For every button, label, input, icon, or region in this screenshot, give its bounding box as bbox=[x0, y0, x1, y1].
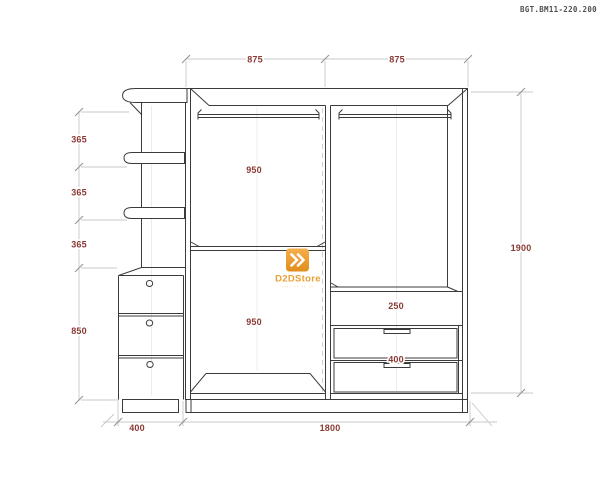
dim-shelf-gap-3: 365 bbox=[71, 239, 87, 249]
drawer-knob bbox=[146, 320, 152, 326]
side-unit-top-panel bbox=[123, 89, 188, 103]
dim-upper-section: 950 bbox=[246, 165, 262, 175]
drawer-handle-slot bbox=[384, 330, 410, 334]
dim-shelf-gap-2: 365 bbox=[71, 187, 87, 197]
dim-top-left-span: 875 bbox=[247, 54, 263, 64]
watermark-brand-text: D2DStore bbox=[275, 274, 321, 285]
watermark-tagline-text: ···· ·· ·· ·· bbox=[282, 285, 314, 290]
drawer-knob bbox=[146, 281, 152, 287]
dim-overall-height: 1900 bbox=[511, 243, 532, 253]
dim-lower-section: 950 bbox=[246, 317, 262, 327]
technical-drawing-canvas: D2DStore ···· ·· ·· ·· 875 875 365 365 3… bbox=[0, 0, 600, 481]
drawer-knob bbox=[147, 362, 153, 368]
interior-shelves bbox=[191, 106, 463, 292]
watermark: D2DStore ···· ·· ·· ·· bbox=[275, 249, 321, 290]
hanging-rails bbox=[198, 110, 451, 120]
dim-right-drawer-section: 400 bbox=[388, 354, 404, 364]
dim-right-shelf-gap: 250 bbox=[388, 301, 404, 311]
dim-top-right-span: 875 bbox=[389, 54, 405, 64]
plinths bbox=[123, 400, 468, 413]
dim-drawer-unit-height: 850 bbox=[71, 326, 87, 336]
side-unit-shelf bbox=[124, 208, 185, 219]
dim-shelf-gap-1: 365 bbox=[71, 134, 87, 144]
side-open-shelf-unit bbox=[123, 89, 188, 268]
dimension-lines bbox=[75, 55, 533, 427]
side-unit-shelf bbox=[124, 153, 185, 164]
wardrobe-diagram: D2DStore ···· ·· ·· ·· 875 875 365 365 3… bbox=[0, 0, 600, 481]
wardrobe-carcass bbox=[186, 89, 468, 400]
document-code: BGT.BM11-220.200 bbox=[520, 5, 597, 14]
side-drawer-unit bbox=[119, 268, 186, 400]
dim-side-unit-width: 400 bbox=[129, 423, 145, 433]
dim-wardrobe-width: 1800 bbox=[320, 423, 341, 433]
